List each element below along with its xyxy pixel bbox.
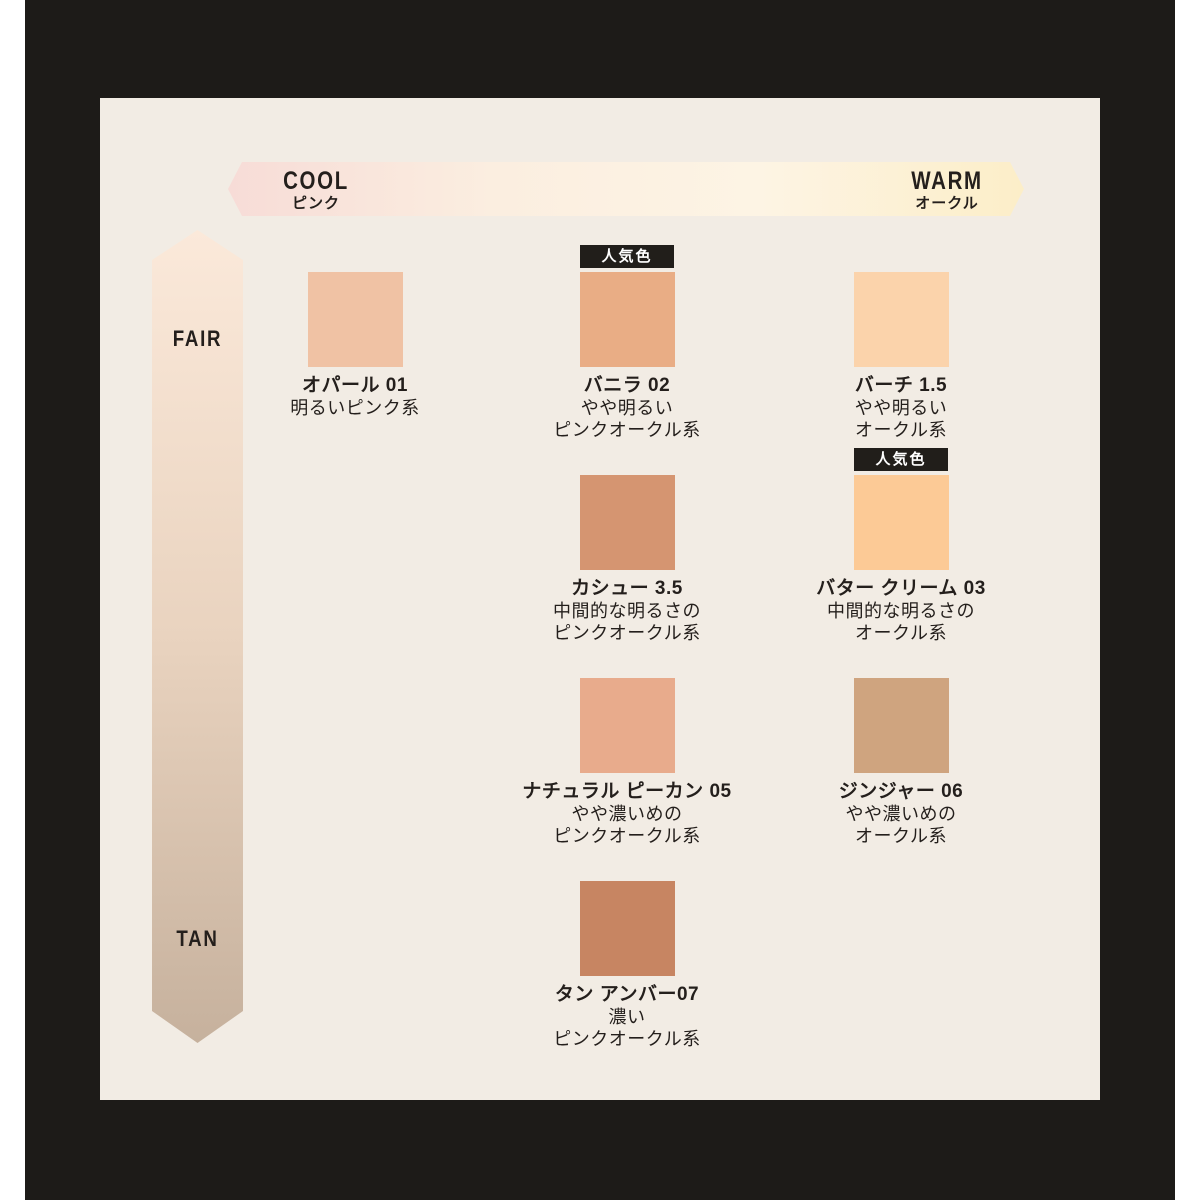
- warm-axis-label: WARM オークル: [892, 169, 1002, 212]
- shade-description: 濃い: [517, 1006, 737, 1028]
- shade-cell-ginger-06: ジンジャー 06 やや濃いめの オークル系: [791, 678, 1011, 847]
- shade-description: ピンクオークル系: [517, 622, 737, 644]
- shade-name: カシュー 3.5: [517, 578, 737, 600]
- shade-description: オークル系: [791, 419, 1011, 441]
- shade-description: オークル系: [791, 825, 1011, 847]
- shade-swatch: [580, 475, 675, 570]
- shade-name: ジンジャー 06: [791, 781, 1011, 803]
- shade-chart-panel: COOL ピンク WARM オークル FAIR TAN オパール 01 明るいピ…: [100, 98, 1100, 1100]
- shade-description: やや明るい: [517, 397, 737, 419]
- warm-sublabel-ochre: オークル: [892, 196, 1002, 212]
- shade-name: タン アンバー07: [517, 984, 737, 1006]
- shade-swatch: [580, 678, 675, 773]
- shade-description: やや濃いめの: [791, 803, 1011, 825]
- cool-axis-label: COOL ピンク: [266, 169, 366, 212]
- shade-name: バーチ 1.5: [791, 375, 1011, 397]
- foundation-shade-chart: COOL ピンク WARM オークル FAIR TAN オパール 01 明るいピ…: [0, 0, 1200, 1200]
- tan-label: TAN: [159, 926, 236, 952]
- shade-cell-cashew-3-5: カシュー 3.5 中間的な明るさの ピンクオークル系: [517, 475, 737, 644]
- shade-cell-tan-amber-07: タン アンバー07 濃い ピンクオークル系: [517, 881, 737, 1050]
- shade-cell-vanilla-02: 人気色 バニラ 02 やや明るい ピンクオークル系: [517, 272, 737, 441]
- cool-label: COOL: [275, 169, 357, 193]
- shade-swatch: [580, 272, 675, 367]
- shade-name: バター クリーム 03: [791, 578, 1011, 600]
- shade-name: ナチュラル ピーカン 05: [517, 781, 737, 803]
- shade-cell-birch-1-5: バーチ 1.5 やや明るい オークル系: [791, 272, 1011, 441]
- shade-description: やや明るい: [791, 397, 1011, 419]
- shade-description: 中間的な明るさの: [791, 600, 1011, 622]
- popular-color-badge: 人気色: [580, 245, 674, 268]
- shade-name: バニラ 02: [517, 375, 737, 397]
- shade-cell-butter-cream-03: 人気色 バター クリーム 03 中間的な明るさの オークル系: [791, 475, 1011, 644]
- shade-description: ピンクオークル系: [517, 419, 737, 441]
- cool-warm-axis-arrow: COOL ピンク WARM オークル: [228, 162, 1024, 216]
- shade-description: オークル系: [791, 622, 1011, 644]
- shade-description: 明るいピンク系: [245, 397, 465, 419]
- popular-color-badge: 人気色: [854, 448, 948, 471]
- shade-swatch: [580, 881, 675, 976]
- shade-description: ピンクオークル系: [517, 1028, 737, 1050]
- shade-description: ピンクオークル系: [517, 825, 737, 847]
- warm-label: WARM: [902, 169, 992, 193]
- shade-swatch: [854, 272, 949, 367]
- shade-cell-opal-01: オパール 01 明るいピンク系: [245, 272, 465, 419]
- shade-swatch: [854, 678, 949, 773]
- cool-sublabel-pink: ピンク: [266, 196, 366, 212]
- shade-swatch: [308, 272, 403, 367]
- fair-tan-axis-arrow: FAIR TAN: [152, 230, 243, 1043]
- shade-swatch: [854, 475, 949, 570]
- shade-name: オパール 01: [245, 375, 465, 397]
- shade-cell-natural-pecan-05: ナチュラル ピーカン 05 やや濃いめの ピンクオークル系: [517, 678, 737, 847]
- fair-label: FAIR: [159, 326, 236, 352]
- shade-description: やや濃いめの: [517, 803, 737, 825]
- shade-description: 中間的な明るさの: [517, 600, 737, 622]
